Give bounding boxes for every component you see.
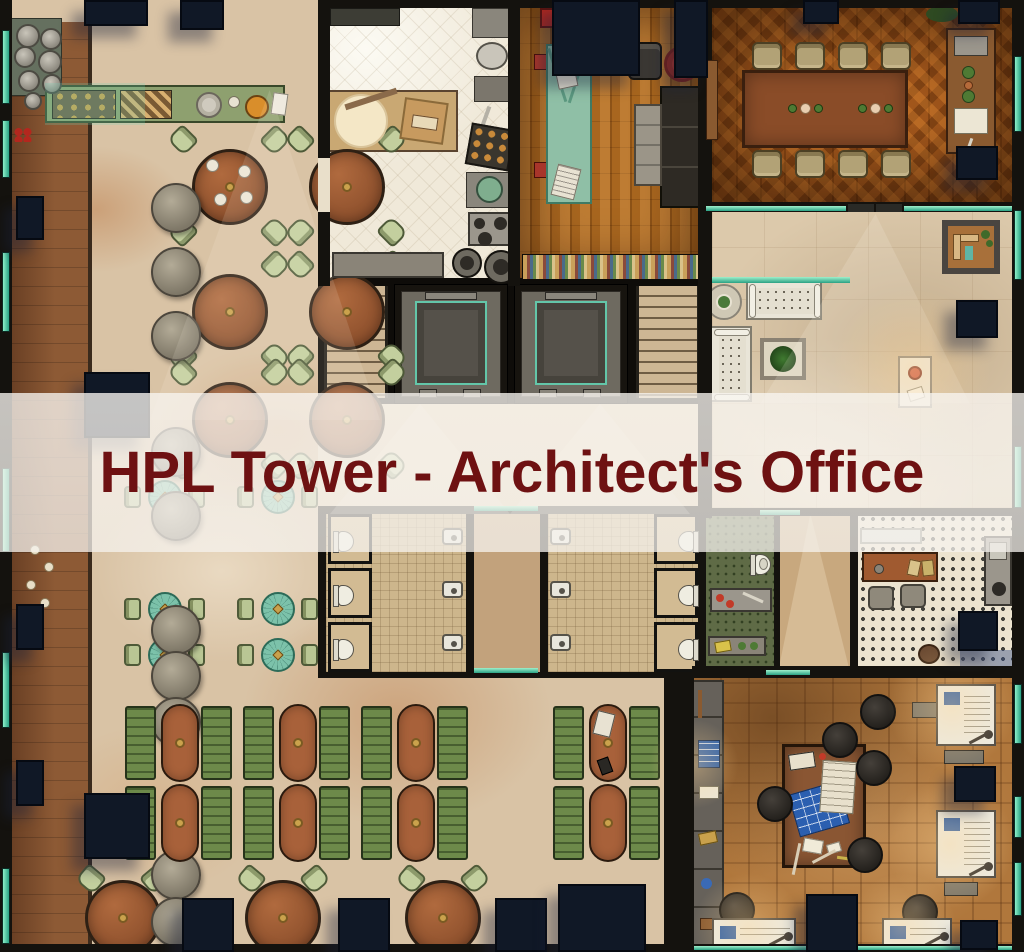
floorplan-map: HPL Tower - Architect's Office: [0, 0, 1024, 952]
lounge-pouf: [151, 247, 201, 297]
booth-table: [279, 784, 317, 862]
pillar: [803, 0, 839, 24]
table-base: [944, 750, 984, 764]
white-sofa-horizontal: [746, 280, 822, 320]
toilet-seat: [759, 558, 768, 570]
lamp-head: [784, 932, 793, 941]
faucet: [451, 641, 457, 647]
conference-chair: [838, 150, 868, 178]
clay-pot: [964, 81, 973, 90]
elevator-rail: [545, 292, 597, 300]
pillar: [16, 760, 44, 806]
workbench: [710, 588, 772, 612]
plant-pot: [962, 66, 975, 79]
photo: [788, 751, 816, 770]
glass-wall: [474, 668, 538, 673]
serving-plate: [196, 92, 222, 118]
booth-bench: [629, 786, 660, 860]
dropped-dish: [44, 562, 54, 572]
toilet-bowl: [678, 639, 694, 660]
bottle: [738, 642, 746, 650]
kitchen-door: [318, 158, 330, 212]
window-glass: [1014, 862, 1022, 916]
window-glass: [1014, 684, 1022, 744]
dish: [214, 193, 227, 206]
flour-sack: [399, 97, 448, 145]
table-centerpiece: [603, 738, 613, 748]
cafe-chair: [124, 598, 141, 620]
pillar: [958, 611, 998, 651]
wall: [664, 672, 694, 952]
toilet: [333, 637, 355, 663]
break-chair: [900, 584, 926, 608]
elevator-rail: [425, 292, 477, 300]
table-centerpiece: [293, 818, 303, 828]
sofa-arm: [714, 329, 750, 336]
paper-stack: [954, 108, 988, 134]
mini-blueprint: [720, 926, 736, 939]
table-centerpiece: [603, 818, 613, 828]
dining-table-group: [192, 149, 268, 225]
plant-pot: [962, 90, 975, 103]
table-centerpiece: [225, 182, 235, 192]
wrench: [742, 592, 763, 604]
drafting-stool: [860, 694, 896, 730]
booth-table: [397, 784, 435, 862]
flour-sack-label: [411, 114, 439, 130]
architecture-model-table: [942, 220, 1000, 274]
table-centerpiece: [175, 818, 185, 828]
small-plate: [228, 96, 240, 108]
conference-chair: [881, 42, 911, 70]
table-base: [944, 882, 978, 896]
faucet: [451, 588, 457, 594]
title-banner: HPL Tower - Architect's Office: [0, 393, 1024, 552]
booth-bench: [125, 706, 156, 780]
bottom-table-group: [405, 880, 481, 952]
toilet: [677, 583, 699, 609]
bottom-table-group: [245, 880, 321, 952]
pillar: [84, 0, 148, 26]
tool-red: [726, 600, 734, 608]
table-centerpiece: [278, 913, 288, 923]
pillar: [958, 0, 1000, 24]
faucet: [559, 641, 565, 647]
toilet-bowl: [678, 585, 694, 606]
pillar: [180, 0, 224, 30]
white-sofa-vertical: [710, 326, 752, 402]
glass-wall: [904, 206, 1012, 211]
teal-table-group: [261, 638, 295, 672]
drafting-table: [936, 684, 996, 746]
cafe-chair: [237, 598, 254, 620]
break-chair: [868, 586, 894, 610]
booth-table: [589, 784, 627, 862]
booth-bench: [437, 786, 468, 860]
sink: [442, 581, 463, 598]
toilet: [677, 637, 699, 663]
pan: [452, 248, 482, 278]
pillar: [558, 884, 646, 952]
mini-blueprint: [944, 692, 960, 705]
glass-wall: [706, 206, 846, 211]
lamp-head: [984, 862, 993, 871]
booth-bench: [361, 706, 392, 780]
conference-chair: [838, 42, 868, 70]
table-centerpiece: [293, 738, 303, 748]
notebook: [921, 559, 935, 576]
booth-table: [279, 704, 317, 782]
rug-center: [718, 296, 730, 308]
wet-floor-sign: [714, 640, 732, 654]
pillar: [954, 766, 996, 802]
glass-wall: [712, 277, 850, 283]
window-glass: [1014, 56, 1022, 132]
dropped-dish: [26, 580, 36, 590]
booth-table: [589, 704, 627, 782]
toilet-bowl: [338, 585, 354, 606]
drafting-stool: [856, 750, 892, 786]
toilet: [333, 583, 355, 609]
window-glass: [2, 868, 10, 944]
red-button-device: [908, 366, 922, 380]
doormat: [918, 644, 940, 664]
stacked-plates: [40, 28, 62, 50]
supply-shelf: [708, 636, 766, 656]
table-item-green: [814, 104, 823, 113]
pillar: [495, 898, 547, 952]
model-pool: [965, 246, 973, 260]
cafe-chair: [124, 644, 141, 666]
tool-red: [716, 594, 724, 602]
stacked-plates: [18, 70, 40, 92]
teal-table-group: [261, 592, 295, 626]
table-base: [912, 702, 938, 718]
kitchen-sink: [472, 8, 510, 38]
sneeze-guard-glass: [45, 83, 145, 125]
table-centerpiece: [411, 738, 421, 748]
note: [802, 837, 824, 854]
conference-chair: [752, 150, 782, 178]
yellow-tool: [698, 830, 718, 845]
booth-bench: [243, 706, 274, 780]
hammer: [698, 690, 702, 718]
burner: [494, 217, 507, 230]
booth-table: [397, 704, 435, 782]
table-centerpiece: [342, 182, 352, 192]
vent-hood: [330, 8, 400, 26]
drafting-stool: [822, 722, 858, 758]
red-knob: [819, 753, 826, 760]
coffee-machine: [474, 76, 510, 102]
blue-ball: [701, 878, 712, 889]
booth-bench: [201, 786, 232, 860]
lounge-pouf: [151, 311, 201, 361]
table-item-plate: [800, 103, 811, 114]
lounge-pouf: [151, 651, 201, 701]
napkin-stack: [271, 92, 289, 116]
pillar: [552, 0, 640, 76]
booth-table: [161, 704, 199, 782]
stacked-plates: [16, 24, 40, 48]
plant-table: [760, 338, 806, 380]
booth-bench: [361, 786, 392, 860]
conference-chair: [752, 42, 782, 70]
magazine: [592, 710, 615, 738]
cafe-chair: [301, 598, 318, 620]
bookshelf-low: [522, 254, 700, 280]
green-pot: [476, 176, 503, 203]
window-glass: [1014, 796, 1022, 838]
model-block: [953, 234, 961, 260]
window-glass: [2, 120, 10, 178]
cafe-chair: [301, 644, 318, 666]
window-glass: [2, 652, 10, 728]
break-table: [862, 552, 938, 582]
elevator-1: [394, 284, 508, 404]
burner: [474, 218, 485, 229]
stacked-plates: [14, 46, 36, 68]
pillar: [16, 196, 44, 240]
table-centerpiece: [175, 738, 185, 748]
table-centerpiece: [118, 913, 128, 923]
dish: [238, 165, 251, 178]
pillar: [16, 604, 44, 650]
conference-chair: [795, 150, 825, 178]
mini-blueprint: [944, 818, 960, 831]
booth-bench: [201, 706, 232, 780]
elevator-2: [514, 284, 628, 404]
elevator-car: [535, 301, 607, 385]
sofa-cushion: [756, 288, 814, 314]
conference-chair: [795, 42, 825, 70]
pillar: [182, 898, 234, 952]
booth-bench: [437, 706, 468, 780]
wall: [692, 666, 1024, 678]
blueprint-poster: [698, 740, 720, 768]
mini-blueprint: [890, 926, 906, 939]
printer: [954, 36, 988, 56]
model-tree: [986, 240, 993, 247]
glass-wall: [766, 670, 810, 675]
stacked-plates: [24, 92, 42, 110]
booth-bench: [243, 786, 274, 860]
pillar: [806, 894, 858, 952]
booth-bench: [629, 706, 660, 780]
table-item-green: [788, 104, 797, 113]
dining-table-group: [192, 274, 268, 350]
pan: [992, 582, 1006, 596]
pillar: [956, 300, 998, 338]
wall: [318, 0, 1024, 8]
wall: [318, 0, 330, 286]
toilet-stall: [328, 568, 372, 618]
table-centerpiece: [411, 818, 421, 828]
cafe-chair: [237, 644, 254, 666]
lamp-head: [940, 932, 949, 941]
stairwell-east: [636, 286, 700, 398]
pillar: [956, 146, 998, 180]
toilet-stall: [654, 568, 698, 618]
table-item-green: [858, 104, 867, 113]
plant: [770, 346, 796, 372]
elevator-car: [415, 301, 487, 385]
bottle: [750, 642, 758, 650]
stacked-plates: [38, 50, 62, 74]
toilet-stall: [328, 622, 372, 672]
sink: [550, 634, 571, 651]
sofa-arm: [814, 284, 821, 318]
table-centerpiece: [225, 307, 235, 317]
booth-bench: [319, 786, 350, 860]
notebook: [906, 559, 921, 577]
sofa-arm: [749, 284, 756, 318]
faucet: [559, 588, 565, 594]
plans-paper: [819, 760, 857, 814]
stove: [468, 212, 512, 246]
drafting-stool: [847, 837, 883, 873]
lamp-head: [984, 730, 993, 739]
mixer-bowl: [476, 42, 508, 70]
model-tree: [981, 230, 990, 239]
burner: [478, 232, 492, 246]
booth-bench: [319, 706, 350, 780]
white-box: [699, 786, 719, 799]
booth-table: [161, 784, 199, 862]
dish: [240, 191, 253, 204]
conference-chair: [881, 150, 911, 178]
phone: [597, 756, 614, 775]
drafting-stool: [757, 786, 793, 822]
drafting-table: [936, 810, 996, 878]
lounge-pouf: [151, 605, 201, 655]
sink: [550, 581, 571, 598]
window-glass: [2, 252, 10, 332]
pillar: [84, 793, 150, 859]
window-glass: [1014, 210, 1022, 280]
fruit-bowl: [245, 95, 269, 119]
lounge-pouf: [151, 183, 201, 233]
door-leaf: [848, 204, 874, 212]
toilet: [750, 552, 772, 578]
table-item-green: [884, 104, 893, 113]
bottom-table-group: [85, 880, 161, 952]
mug: [874, 564, 884, 574]
newspaper: [550, 164, 581, 201]
door-leaf: [876, 204, 902, 212]
toilet-bowl: [338, 639, 354, 660]
table-centerpiece: [438, 913, 448, 923]
toilet-stall: [654, 622, 698, 672]
dish: [206, 159, 219, 172]
booth-bench: [553, 706, 584, 780]
flowers: [14, 128, 32, 142]
table-centerpiece: [342, 307, 352, 317]
map-title: HPL Tower - Architect's Office: [100, 439, 925, 506]
pillar: [338, 898, 390, 952]
sideboard: [946, 28, 996, 154]
window-glass: [2, 30, 10, 104]
corner-plant: [926, 6, 958, 22]
table-item-plate: [870, 103, 881, 114]
booth-bench: [553, 786, 584, 860]
kitchen-counter: [332, 252, 444, 278]
pillar: [960, 920, 998, 950]
sink: [442, 634, 463, 651]
pillar: [674, 0, 708, 78]
gray-bench: [634, 104, 662, 186]
sofa-cushion: [719, 336, 746, 394]
wall: [508, 0, 520, 286]
